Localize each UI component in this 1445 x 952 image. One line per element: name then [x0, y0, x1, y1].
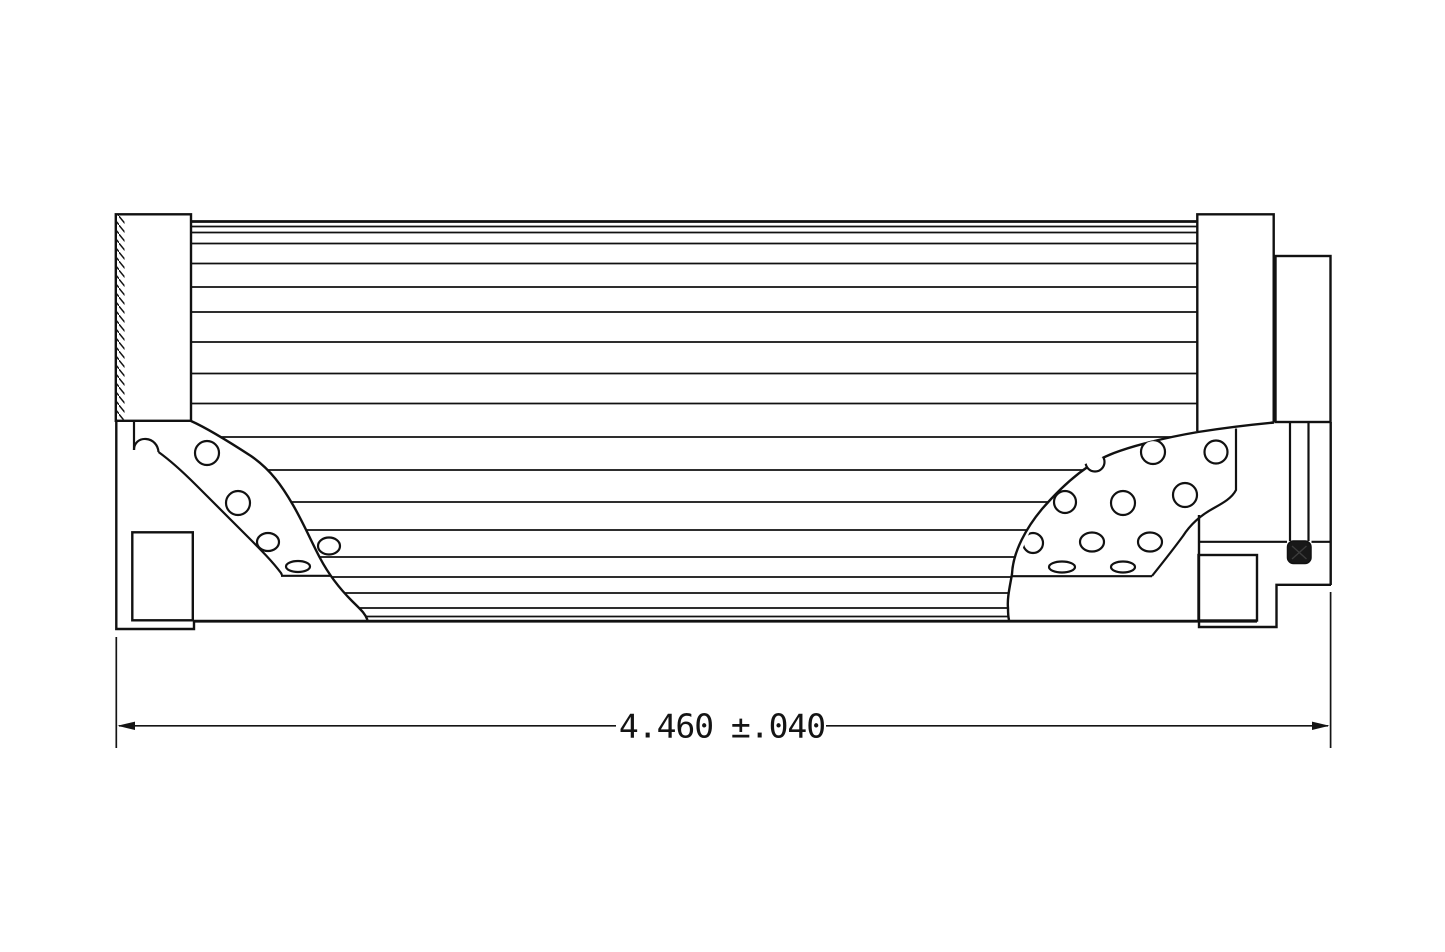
arrowhead-right: [1312, 722, 1330, 730]
end-cap-plate: [116, 214, 191, 420]
left-housing-profile: [116, 421, 194, 629]
filter-element-drawing: 4.460 ±.040: [0, 0, 1445, 952]
arrowhead-left: [118, 722, 136, 730]
adapter-hub: [1276, 256, 1331, 422]
adapter-collar: [1197, 214, 1273, 431]
dimension-tolerance: ±.040: [731, 707, 825, 746]
left-port-boss: [132, 532, 193, 620]
right-notch: [1199, 555, 1258, 621]
perforation-hole-partial: [318, 538, 340, 555]
technical-drawing-page: 4.460 ±.040: [0, 0, 1445, 952]
rib-bump: [134, 439, 159, 452]
dimension-value: 4.460: [619, 707, 713, 746]
knurl-hatch: [117, 216, 125, 420]
